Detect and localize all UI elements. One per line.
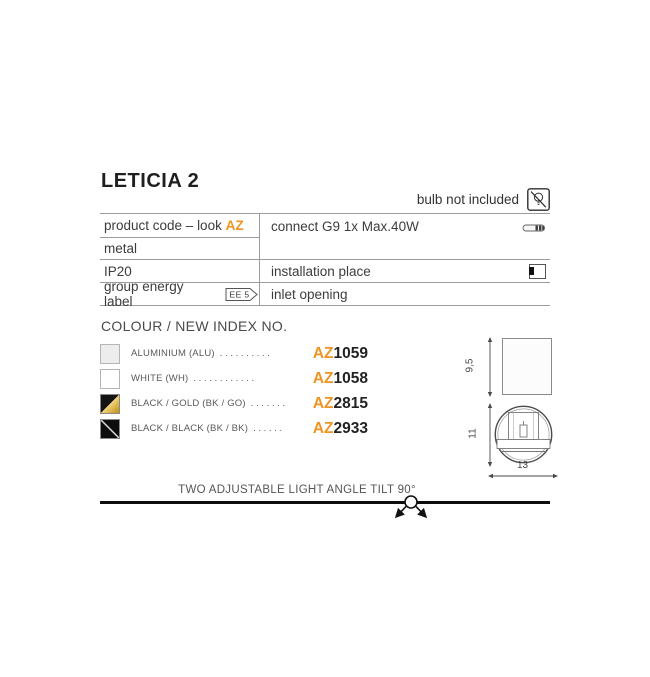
product-code-label: product code – look AZ [104, 218, 244, 233]
energy-label: group energy label [104, 279, 215, 309]
page-title: LETICIA 2 [101, 170, 199, 193]
product-code: AZ2933 [313, 420, 368, 438]
wall-mount-icon [529, 264, 546, 279]
energy-badge-text: EE 5 [230, 289, 250, 299]
connect-label: connect G9 1x Max.40W [271, 219, 419, 234]
side-width-dimension-line [488, 470, 558, 482]
table-row: product code – look AZ connect G9 1x Max… [100, 214, 550, 238]
spec-connect-cell: connect G9 1x Max.40W [260, 214, 550, 238]
material-label: metal [104, 241, 137, 256]
crossed-bulb-icon [527, 188, 550, 211]
product-code: AZ1059 [313, 345, 368, 363]
list-item: WHITE (WH) . . . . . . . . . . . . AZ105… [100, 366, 368, 391]
colour-list: ALUMINIUM (ALU) . . . . . . . . . . AZ10… [100, 341, 368, 441]
front-view-diagram [502, 338, 552, 395]
product-code: AZ2815 [313, 395, 368, 413]
table-row: group energy label EE 5 inlet opening [100, 283, 550, 306]
bulb-note: bulb not included [417, 188, 550, 211]
list-item: BLACK / BLACK (BK / BK) . . . . . . AZ29… [100, 416, 368, 441]
colour-swatch-black-gold [100, 394, 120, 414]
inlet-opening-label: inlet opening [271, 287, 348, 302]
dot-leader: . . . . . . [253, 423, 308, 434]
adjustable-angle-note: TWO ADJUSTABLE LIGHT ANGLE TILT 90° [97, 484, 497, 496]
product-spec-sheet: LETICIA 2 bulb not included product code… [0, 0, 650, 677]
bulb-note-label: bulb not included [417, 192, 519, 207]
table-row: metal [100, 238, 550, 260]
colour-section-heading: COLOUR / NEW INDEX NO. [101, 318, 287, 334]
side-height-label: 11 [468, 428, 479, 438]
footer-divider [100, 501, 550, 504]
spec-product-code-cell: product code – look AZ [100, 214, 260, 238]
dot-leader: . . . . . . . . . . [220, 348, 308, 359]
colour-swatch-black-black [100, 419, 120, 439]
front-height-dimension-line [484, 337, 496, 397]
energy-class-badge: EE 5 [225, 287, 259, 302]
colour-swatch-aluminium [100, 344, 120, 364]
colour-swatch-white [100, 369, 120, 389]
product-code: AZ1058 [313, 370, 368, 388]
spec-installation-cell: installation place [260, 260, 550, 283]
colour-label: WHITE (WH) [131, 373, 188, 384]
list-item: BLACK / GOLD (BK / GO) . . . . . . . AZ2… [100, 391, 368, 416]
list-item: ALUMINIUM (ALU) . . . . . . . . . . AZ10… [100, 341, 368, 366]
front-height-label: 9,5 [464, 359, 475, 373]
side-height-dimension-line [484, 403, 496, 467]
dot-leader: . . . . . . . [251, 398, 308, 409]
tilt-angle-icon [388, 490, 434, 523]
colour-label: ALUMINIUM (ALU) [131, 348, 215, 359]
dot-leader: . . . . . . . . . . . . [193, 373, 307, 384]
spec-empty-cell [260, 238, 550, 260]
colour-label: BLACK / BLACK (BK / BK) [131, 423, 248, 434]
spec-inlet-cell: inlet opening [260, 283, 550, 306]
spec-energy-cell: group energy label EE 5 [100, 283, 260, 306]
spec-material-cell: metal [100, 238, 260, 260]
side-view-diagram [489, 404, 559, 466]
brand-accent: AZ [226, 218, 244, 233]
colour-label: BLACK / GOLD (BK / GO) [131, 398, 246, 409]
installation-place-label: installation place [271, 264, 371, 279]
g9-bulb-icon [522, 221, 546, 231]
spec-table: product code – look AZ connect G9 1x Max… [100, 213, 550, 306]
ip-rating-label: IP20 [104, 264, 132, 279]
